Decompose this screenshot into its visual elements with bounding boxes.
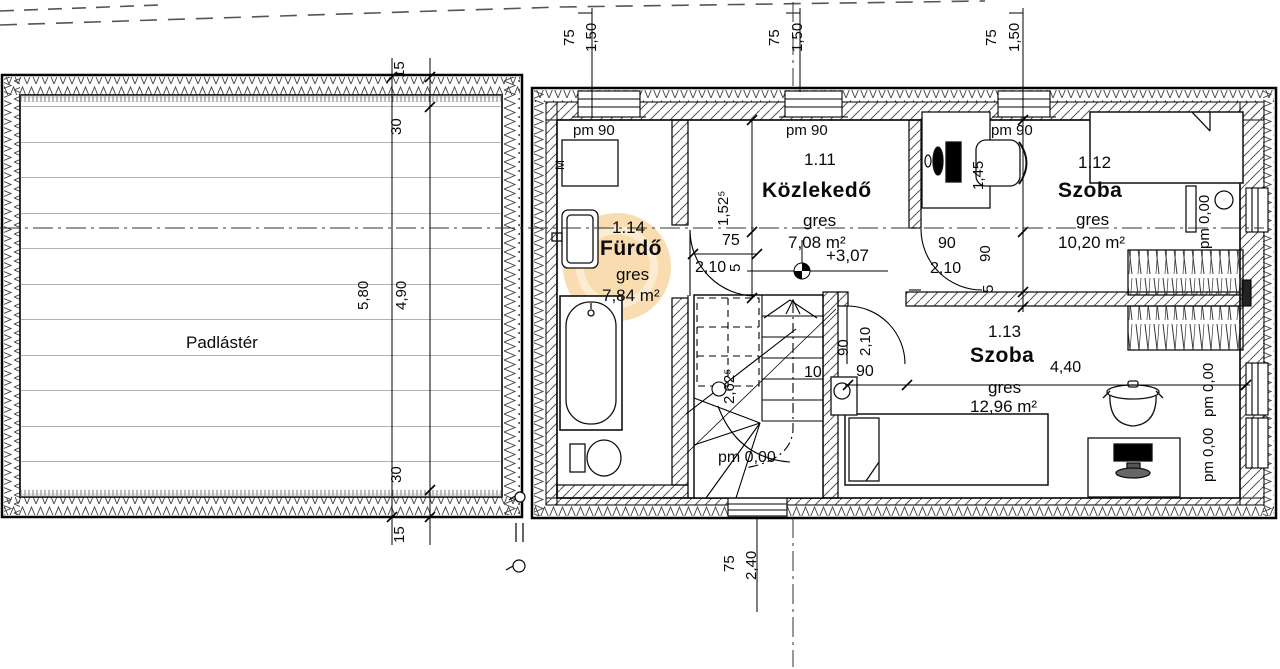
room-112-chain-5: 5 [981,285,996,293]
room-112-name: Szoba [1058,180,1122,201]
room-112-area: 10,20 m² [1058,234,1125,251]
room-111-floor: gres [803,212,836,229]
axis-bottom-offset: 75 [722,555,737,572]
desk-113-icon [1088,438,1180,497]
door-113-width: 90 [836,339,851,356]
axis1-width: 1,50 [584,23,599,52]
attic-dim-top30: 30 [389,118,404,135]
washing-machine-icon [562,140,618,186]
room-111-dim-height: 1,52⁵ [716,191,731,226]
room-114-floor: gres [616,266,649,283]
attic-label: Padlástér [186,334,258,351]
door-114-gap: 5 [728,264,743,272]
door-114-height: 2,10 [695,260,726,276]
window-right-112-icon [1246,188,1268,232]
door-113-height: 2,10 [858,327,873,356]
door-112-width: 90 [938,236,956,252]
toilet-icon [570,440,621,476]
room-112-chain-90: 90 [978,245,993,262]
roof-projection-lines [0,1,985,25]
room-114-parapet: pm 90 [573,123,615,138]
stairs-level: pm 0,00 [718,450,776,466]
room-113-area: 12,96 m² [970,398,1037,415]
room-111-parapet: pm 90 [786,123,828,138]
room-113-name: Szoba [970,345,1034,366]
attic-dim-bot30: 30 [389,466,404,483]
room-112-floor: gres [1076,211,1109,228]
axis3-offset: 75 [984,29,999,46]
room-114-area: 7,84 m² [602,287,660,304]
window-right-113a-icon [1246,363,1268,415]
stairs-run-length: 2,62⁵ [722,369,737,404]
bed-113-icon [845,414,1048,485]
washing-machine-label: M [554,160,566,170]
axis-bottom-width: 2,40 [744,551,759,580]
door-114-width: 75 [722,233,740,249]
door-112-height: 2,10 [930,261,961,277]
bathtub-icon [560,296,622,430]
room-114-name: Fürdő [600,238,662,259]
attic-structure [2,75,522,517]
room-114-number: 1.14 [612,219,645,236]
window-bath-icon [572,91,646,117]
window-room112-icon [992,91,1056,117]
room-113-dim-90: 90 [856,364,874,380]
window-stairs-icon [728,498,787,516]
attic-dim-top15: 15 [392,61,407,78]
attic-dim-total: 5,80 [356,281,371,310]
wardrobe-113-icon [1128,306,1243,350]
room-113-parapet-win1: pm 0,00 [1201,363,1216,417]
room-113-dim-10: 10 [804,365,822,381]
window-right-113b-icon [1246,418,1268,468]
room-113-floor: gres [988,379,1021,396]
attic-dim-inner: 4,90 [394,281,409,310]
bed-112-icon [1090,112,1243,183]
room-112-number: 1.12 [1078,154,1111,171]
axis1-offset: 75 [562,29,577,46]
room-113-number: 1.13 [988,323,1021,340]
stairs-icon [686,295,836,498]
room-113-parapet-win2: pm 0,00 [1201,428,1216,482]
room-112-parapet-right: pm 0,00 [1197,195,1212,249]
radiator-icon [831,377,857,415]
room-113-dim-width: 4,40 [1050,360,1081,376]
axis2-width: 1,50 [790,23,805,52]
room-111-level: +3,07 [826,247,869,264]
axis3-width: 1,50 [1007,23,1022,52]
room-112-parapet: pm 90 [991,123,1033,138]
wardrobe-112-icon [1128,250,1243,295]
axis2-offset: 75 [767,29,782,46]
room-111-number: 1.11 [804,151,836,168]
room-112-chain-145: 1,45 [971,161,986,190]
window-hall-icon [779,91,848,117]
floor-plan: Padlástér 15 30 5,80 4,90 30 15 75 1,50 … [0,0,1280,669]
room-111-name: Közlekedő [762,180,872,201]
attic-dim-bot15: 15 [392,526,407,543]
